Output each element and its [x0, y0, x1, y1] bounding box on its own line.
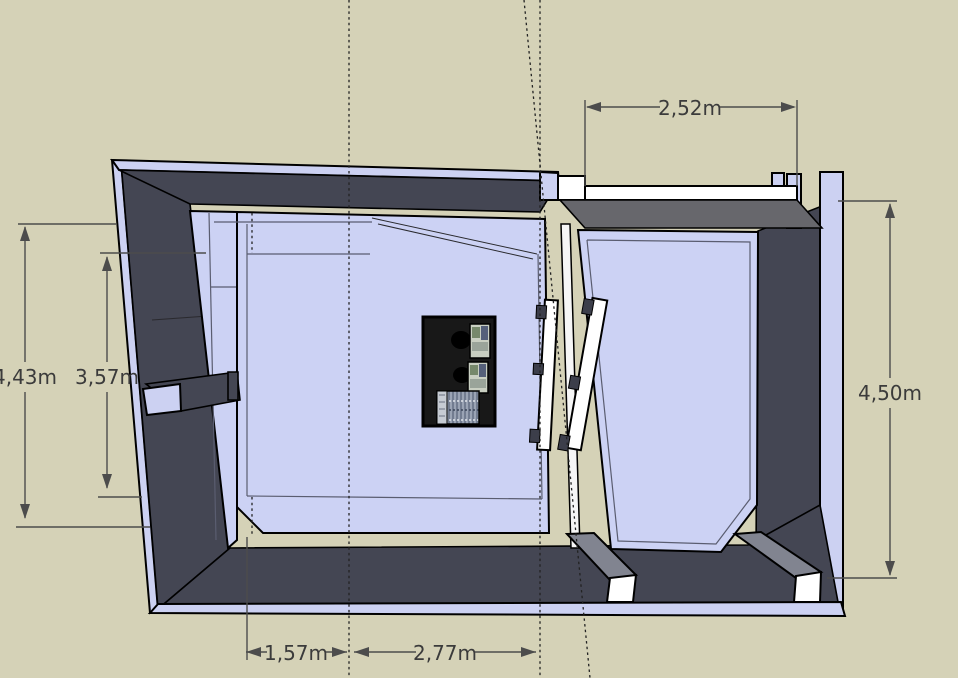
mixer-console	[437, 391, 479, 424]
dimension-label-right: 4,50m	[858, 381, 922, 405]
live-room-top-wall	[560, 200, 822, 228]
dimension-label-bottom-right: 2,77m	[413, 641, 477, 665]
bottom-wall-top	[150, 602, 845, 616]
monitor-screen	[470, 324, 490, 358]
corner-block	[540, 172, 558, 200]
dimension-label-left-outer: 4,43m	[0, 365, 57, 389]
dimension-label-left-inner: 3,57m	[75, 365, 139, 389]
beam-left-end	[607, 575, 636, 602]
dimension-label-bottom-left: 1,57m	[264, 641, 328, 665]
mixing-desk	[423, 317, 495, 426]
floor-plan-canvas[interactable]: 2,52m 4,43m 3,57m	[0, 0, 958, 678]
modeling-viewport[interactable]: 2,52m 4,43m 3,57m	[0, 0, 958, 678]
dimension-label-top: 2,52m	[658, 96, 722, 120]
white-beam	[585, 186, 797, 200]
white-cube	[558, 176, 585, 200]
beam-right-end	[794, 572, 821, 602]
monitor-screen	[468, 362, 488, 393]
shelf-anchor	[228, 372, 238, 400]
shelf-front	[143, 384, 181, 415]
control-room-floor	[237, 212, 549, 533]
